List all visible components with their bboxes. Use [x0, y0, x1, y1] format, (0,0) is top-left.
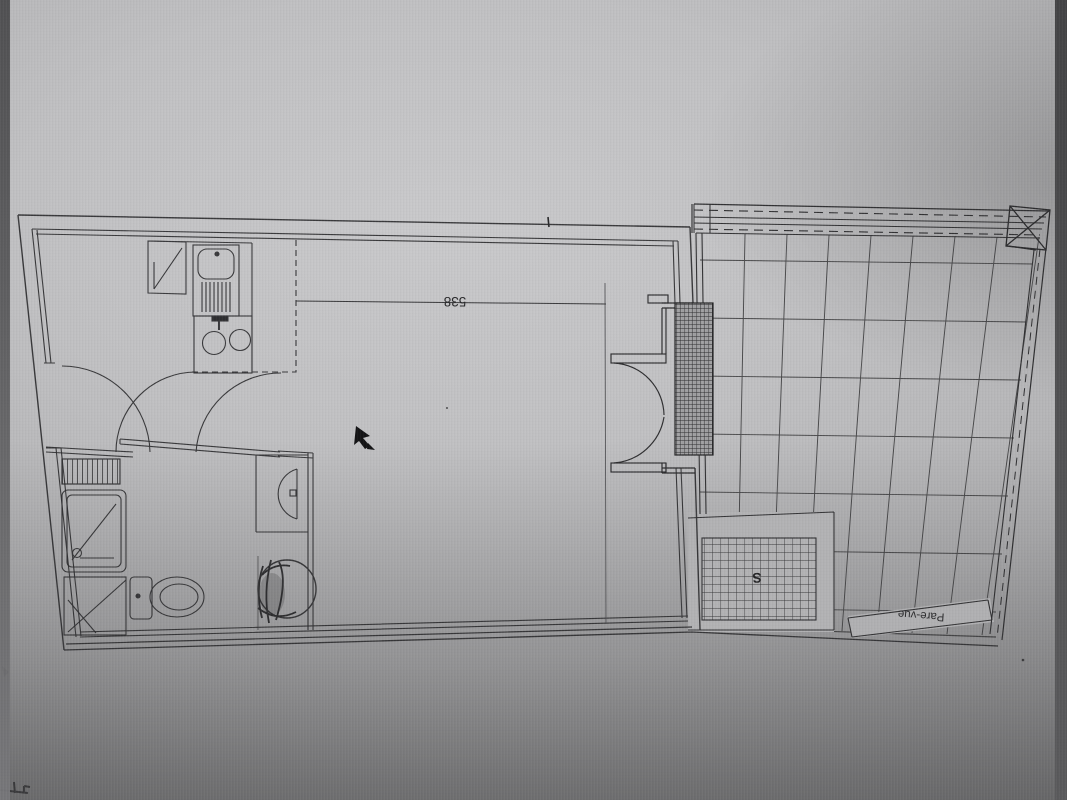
photo-of-floor-plan: 538 Pare-vue S [0, 0, 1067, 800]
kitchen-sink [193, 245, 239, 330]
door-swing-arc [614, 363, 664, 415]
photo-edge-left [0, 0, 10, 800]
dimension: 538 [296, 283, 606, 624]
towel-radiator [62, 459, 120, 484]
kitchen [148, 240, 296, 373]
glazing-hatch [675, 303, 713, 455]
bathroom [46, 366, 316, 635]
hob-two-burners [194, 316, 252, 373]
terrace-top-rail [694, 204, 1048, 238]
toilet [130, 577, 204, 619]
entry-door-swing [62, 366, 150, 452]
dimension-label: 538 [444, 294, 467, 309]
guardrail-dashed [990, 248, 1046, 640]
washbasin [256, 455, 308, 532]
fridge-cabinet [148, 241, 186, 294]
bathroom-cabinet [64, 577, 126, 635]
door-swing-arc [196, 373, 281, 452]
shower-tray [62, 490, 126, 572]
floor-plan-drawing: 538 Pare-vue S [0, 0, 1067, 800]
photo-edge-right [1055, 0, 1067, 800]
door-swing-arc [614, 417, 664, 463]
sink-drainer [202, 282, 230, 312]
apartment-walls [18, 215, 998, 650]
door-leaf [120, 439, 280, 457]
washing-machine [258, 556, 316, 630]
kitchen-zone-dashed [188, 240, 296, 372]
floor-grate-mark: S [752, 570, 762, 586]
